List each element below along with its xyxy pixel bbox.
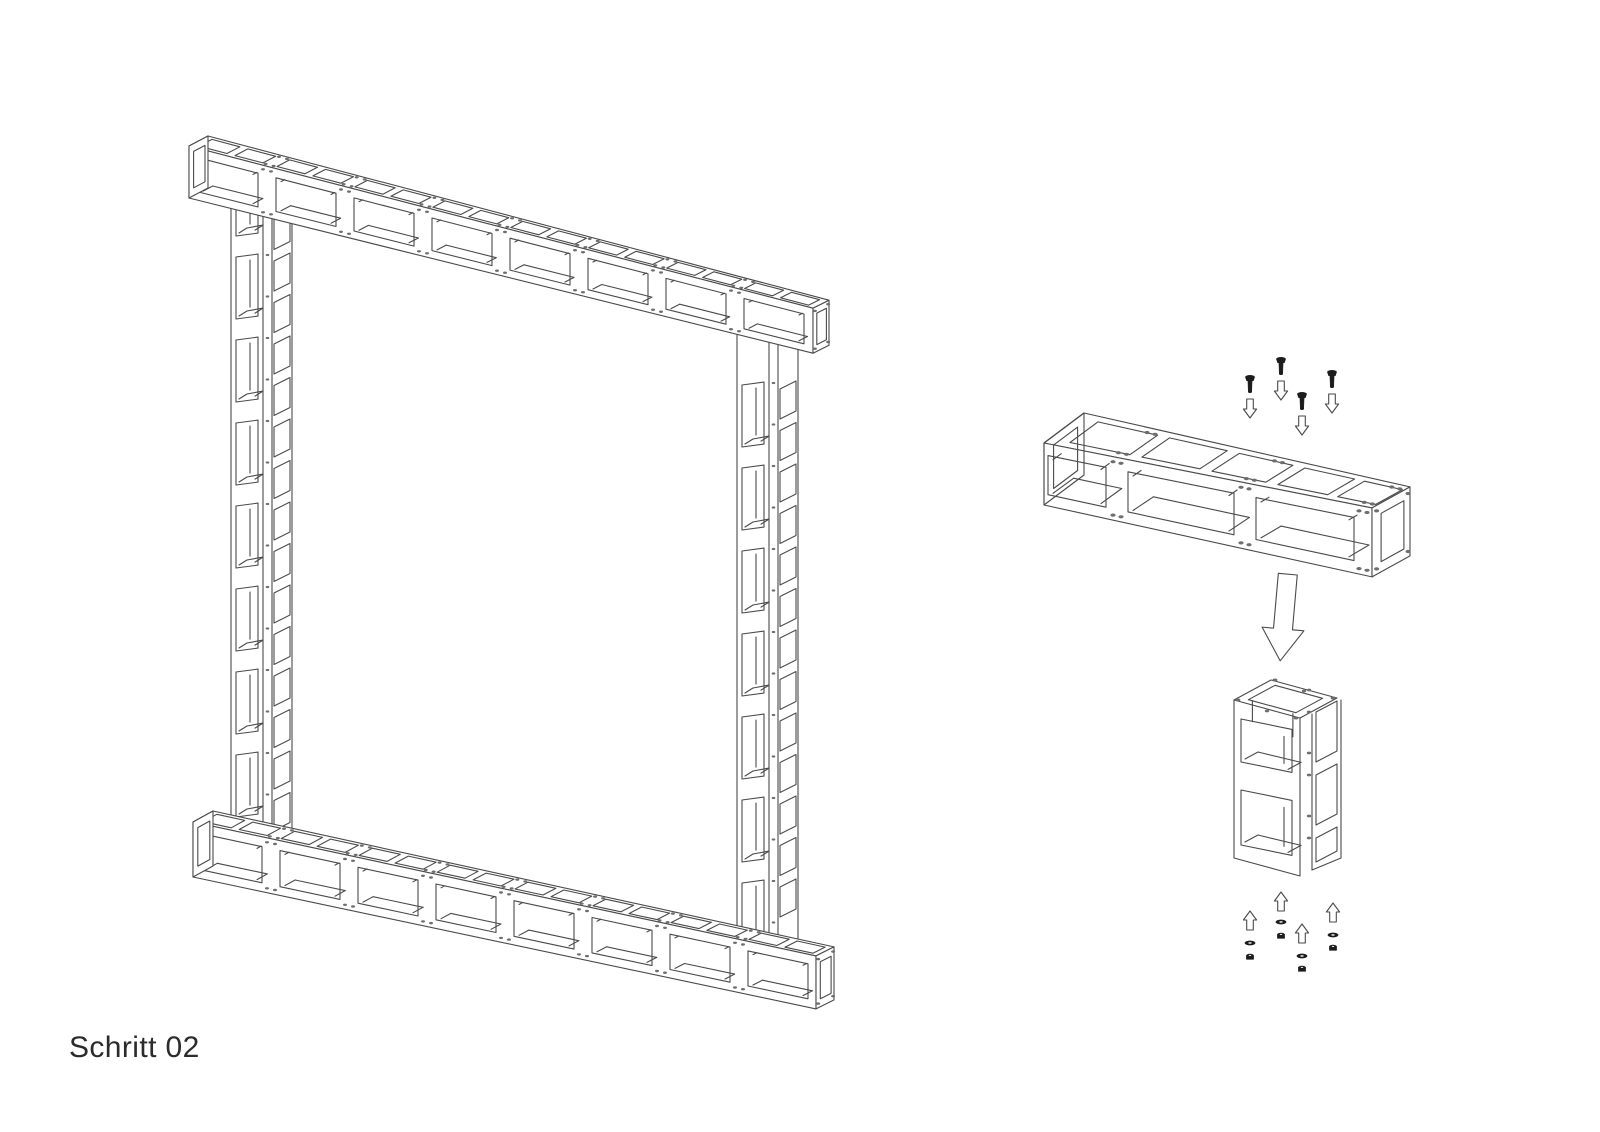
screw-direction-arrow-icon: [1243, 399, 1256, 418]
fastener-set: [1243, 911, 1256, 959]
fastener-set: [1274, 892, 1287, 938]
screw-direction-arrow-icon: [1295, 416, 1308, 435]
detail-illustration: [1044, 357, 1411, 971]
fastener-direction-arrow-icon: [1326, 903, 1339, 922]
truss-assembly-diagram: [0, 0, 1600, 1132]
insertion-direction-arrow-icon: [1259, 572, 1308, 662]
nut: [1329, 945, 1336, 950]
right-column: [737, 326, 798, 958]
detail-column: [1234, 679, 1341, 877]
frame-illustration: [189, 136, 835, 1009]
washer: [1276, 920, 1286, 924]
fastener-direction-arrow-icon: [1243, 911, 1256, 930]
left-column: [231, 170, 292, 846]
washer: [1328, 933, 1338, 937]
detail-beam: [1044, 413, 1411, 577]
fastener-set: [1295, 924, 1308, 971]
countersunk-screw: [1297, 392, 1306, 410]
nut: [1298, 966, 1305, 971]
nut: [1246, 954, 1253, 959]
countersunk-screw: [1276, 357, 1285, 375]
countersunk-screw: [1245, 375, 1254, 393]
fastener-direction-arrow-icon: [1295, 924, 1308, 943]
screw-direction-arrow-icon: [1274, 381, 1287, 400]
step-label: Schritt 02: [69, 1031, 200, 1065]
assembly-instruction-page: Schritt 02: [0, 0, 1600, 1132]
fastener-set: [1326, 903, 1339, 950]
nut: [1277, 933, 1284, 938]
countersunk-screw: [1327, 370, 1336, 388]
fastener-direction-arrow-icon: [1274, 892, 1287, 911]
washer: [1245, 941, 1255, 945]
screw-direction-arrow-icon: [1325, 394, 1338, 413]
washer: [1297, 954, 1307, 958]
